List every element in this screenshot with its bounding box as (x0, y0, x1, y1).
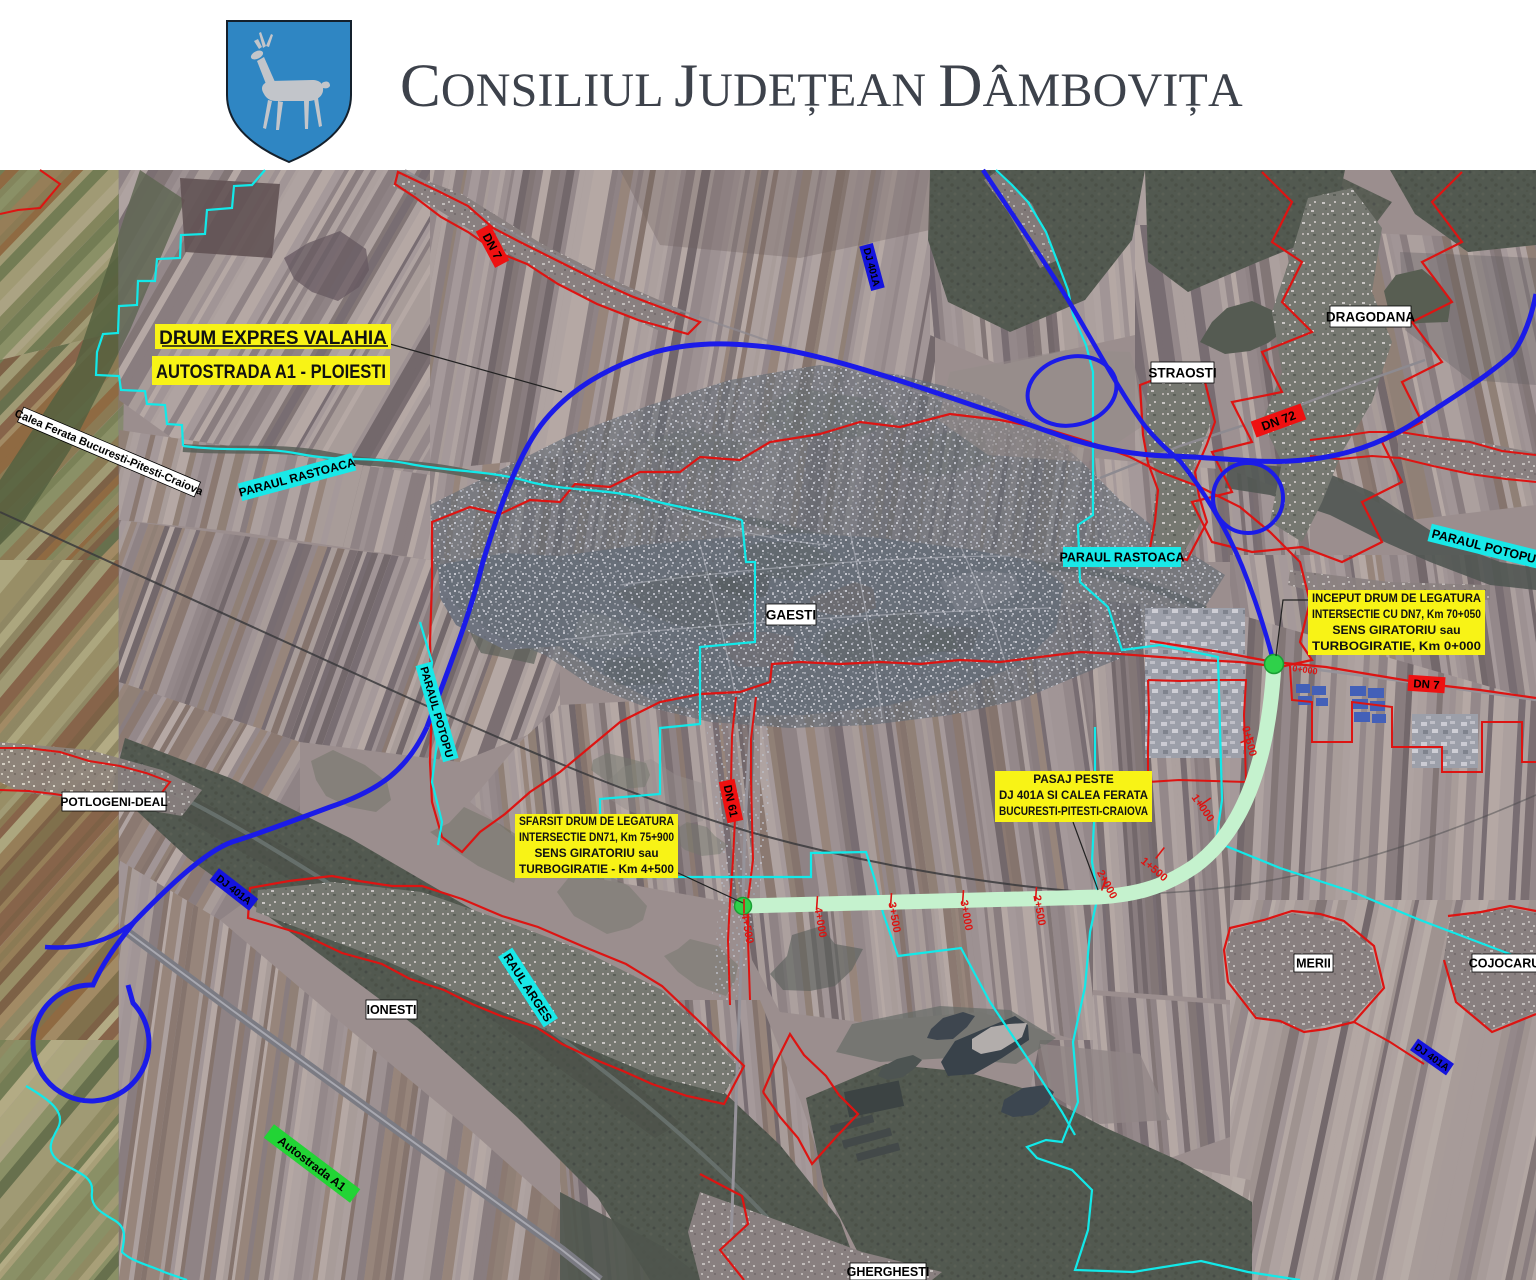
svg-text:DN 7: DN 7 (1413, 678, 1440, 692)
svg-text:TURBOGIRATIE - Km 4+500: TURBOGIRATIE - Km 4+500 (519, 862, 674, 876)
svg-text:STRAOSTI: STRAOSTI (1148, 365, 1216, 380)
svg-text:SFARSIT DRUM DE LEGATURA: SFARSIT DRUM DE LEGATURA (519, 814, 674, 828)
svg-text:TURBOGIRATIE, Km 0+000: TURBOGIRATIE, Km 0+000 (1312, 639, 1481, 653)
svg-text:BUCURESTI-PITESTI-CRAIOVA: BUCURESTI-PITESTI-CRAIOVA (999, 804, 1148, 818)
svg-text:DJ 401A SI CALEA FERATA: DJ 401A SI CALEA FERATA (999, 788, 1148, 802)
svg-text:INTERSECTIE DN71, Km 75+900: INTERSECTIE DN71, Km 75+900 (519, 830, 674, 844)
svg-text:GAESTI: GAESTI (766, 607, 816, 622)
svg-text:COJOCARU: COJOCARU (1469, 957, 1536, 971)
svg-text:SENS GIRATORIU sau: SENS GIRATORIU sau (1332, 623, 1460, 637)
svg-text:PARAUL RASTOACA: PARAUL RASTOACA (1059, 551, 1184, 565)
svg-text:GHERGHESTI: GHERGHESTI (847, 1265, 930, 1279)
svg-text:INCEPUT DRUM DE LEGATURA: INCEPUT DRUM DE LEGATURA (1312, 591, 1481, 605)
svg-text:AUTOSTRADA A1 - PLOIESTI: AUTOSTRADA A1 - PLOIESTI (156, 362, 386, 383)
svg-text:SENS GIRATORIU sau: SENS GIRATORIU sau (534, 846, 658, 860)
svg-text:DRAGODANA: DRAGODANA (1326, 309, 1415, 324)
svg-text:PASAJ PESTE: PASAJ PESTE (1033, 772, 1114, 786)
svg-text:MERII: MERII (1296, 957, 1331, 971)
svg-text:INTERSECTIE CU DN7, Km 70+050: INTERSECTIE CU DN7, Km 70+050 (1312, 607, 1481, 621)
svg-text:IONESTI: IONESTI (366, 1003, 416, 1017)
svg-text:POTLOGENI-DEAL: POTLOGENI-DEAL (60, 795, 167, 809)
